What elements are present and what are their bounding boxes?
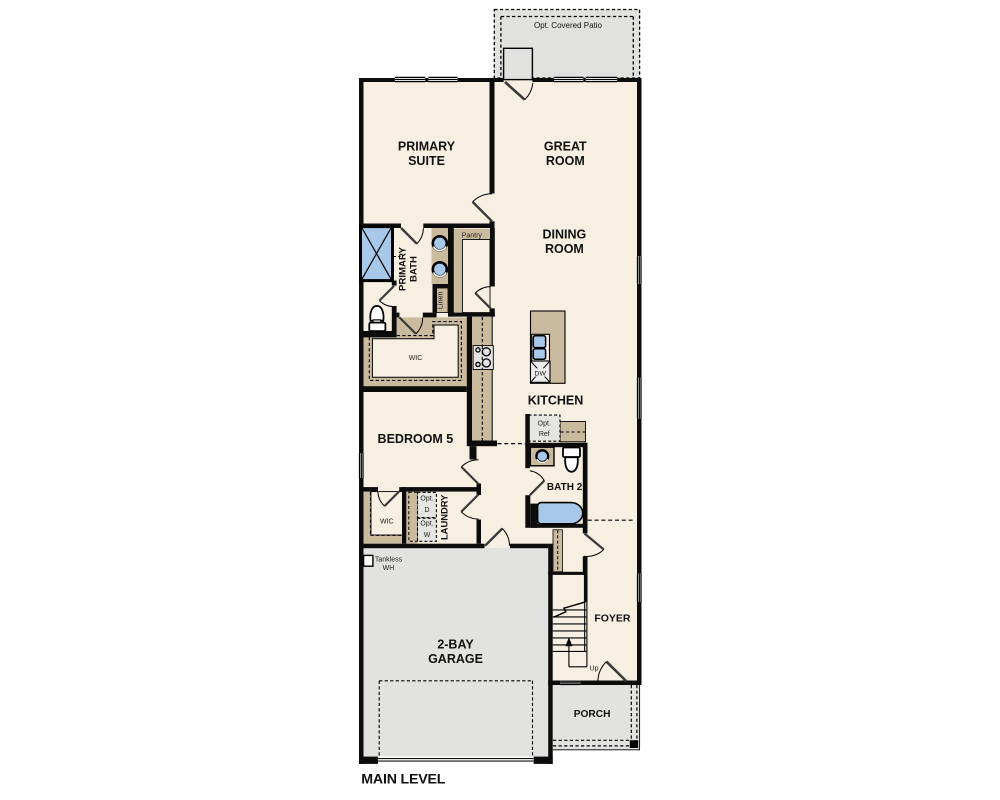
svg-text:Opt.: Opt. (538, 421, 551, 428)
svg-text:BATH 2: BATH 2 (547, 482, 583, 493)
svg-text:KITCHEN: KITCHEN (528, 394, 584, 408)
svg-text:DINING: DINING (543, 227, 587, 241)
svg-text:DW: DW (535, 371, 547, 378)
svg-text:WIC: WIC (380, 519, 394, 526)
svg-text:Opt.: Opt. (420, 495, 433, 502)
svg-text:FOYER: FOYER (594, 612, 631, 624)
svg-text:D: D (424, 507, 429, 514)
svg-text:Opt.: Opt. (420, 521, 433, 528)
svg-text:WIC: WIC (409, 355, 423, 362)
svg-text:GREAT: GREAT (544, 139, 587, 153)
svg-text:LAUNDRY: LAUNDRY (439, 494, 450, 540)
svg-text:PORCH: PORCH (574, 709, 611, 720)
svg-text:BATH: BATH (409, 256, 420, 282)
svg-text:GARAGE: GARAGE (428, 652, 483, 666)
svg-text:SUITE: SUITE (408, 154, 445, 168)
svg-text:ROOM: ROOM (545, 242, 584, 256)
svg-text:Tankless: Tankless (375, 557, 403, 564)
svg-text:2-BAY: 2-BAY (437, 638, 474, 652)
svg-text:Opt. Covered Patio: Opt. Covered Patio (534, 21, 603, 30)
svg-text:Ref: Ref (539, 431, 550, 438)
svg-text:Up: Up (590, 665, 599, 672)
svg-text:ROOM: ROOM (546, 154, 585, 168)
svg-text:MAIN LEVEL: MAIN LEVEL (361, 771, 445, 787)
svg-text:Linen: Linen (435, 292, 444, 310)
svg-text:WH: WH (383, 565, 395, 572)
svg-text:BEDROOM 5: BEDROOM 5 (378, 432, 454, 446)
svg-text:W: W (424, 532, 431, 539)
svg-text:Pantry: Pantry (462, 232, 483, 239)
svg-text:PRIMARY: PRIMARY (398, 246, 409, 290)
svg-text:PRIMARY: PRIMARY (398, 139, 456, 153)
